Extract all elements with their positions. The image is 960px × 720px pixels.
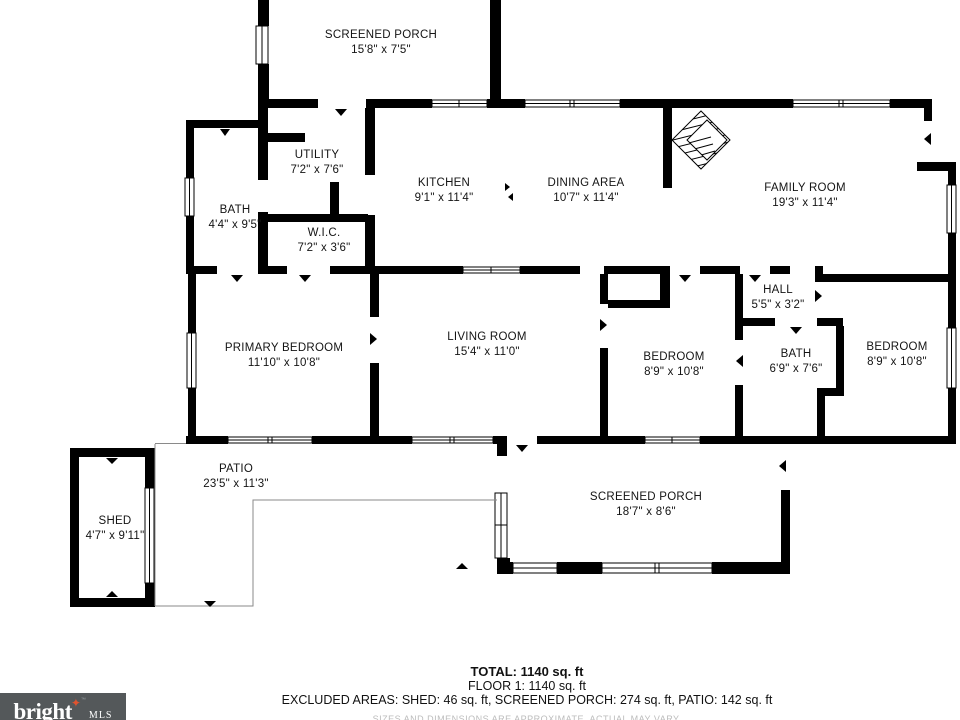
walls — [70, 0, 956, 607]
patio-outline — [155, 444, 497, 607]
star-icon: ✦ — [71, 697, 81, 709]
excluded-areas-text: EXCLUDED AREAS: SHED: 46 sq. ft, SCREENE… — [282, 693, 773, 707]
total-area-text: TOTAL: 1140 sq. ft — [282, 664, 773, 679]
floor-plan: SCREENED PORCH15'8" x 7'5"UTILITY7'2" x … — [0, 0, 960, 720]
disclaimer-text: SIZES AND DIMENSIONS ARE APPROXIMATE, AC… — [282, 714, 773, 720]
fireplace-icon — [669, 109, 733, 181]
floor-area-text: FLOOR 1: 1140 sq. ft — [282, 679, 773, 693]
door-markers — [106, 109, 931, 607]
trademark-text: ™ — [81, 698, 86, 703]
area-summary: TOTAL: 1140 sq. ft FLOOR 1: 1140 sq. ft … — [282, 664, 773, 720]
brightmls-logo: bright ✦ ™ MLS — [0, 693, 126, 720]
logo-suffix-text: MLS — [89, 710, 113, 720]
logo-brand-text: bright — [14, 700, 72, 720]
floor-plan-drawing — [0, 0, 960, 720]
